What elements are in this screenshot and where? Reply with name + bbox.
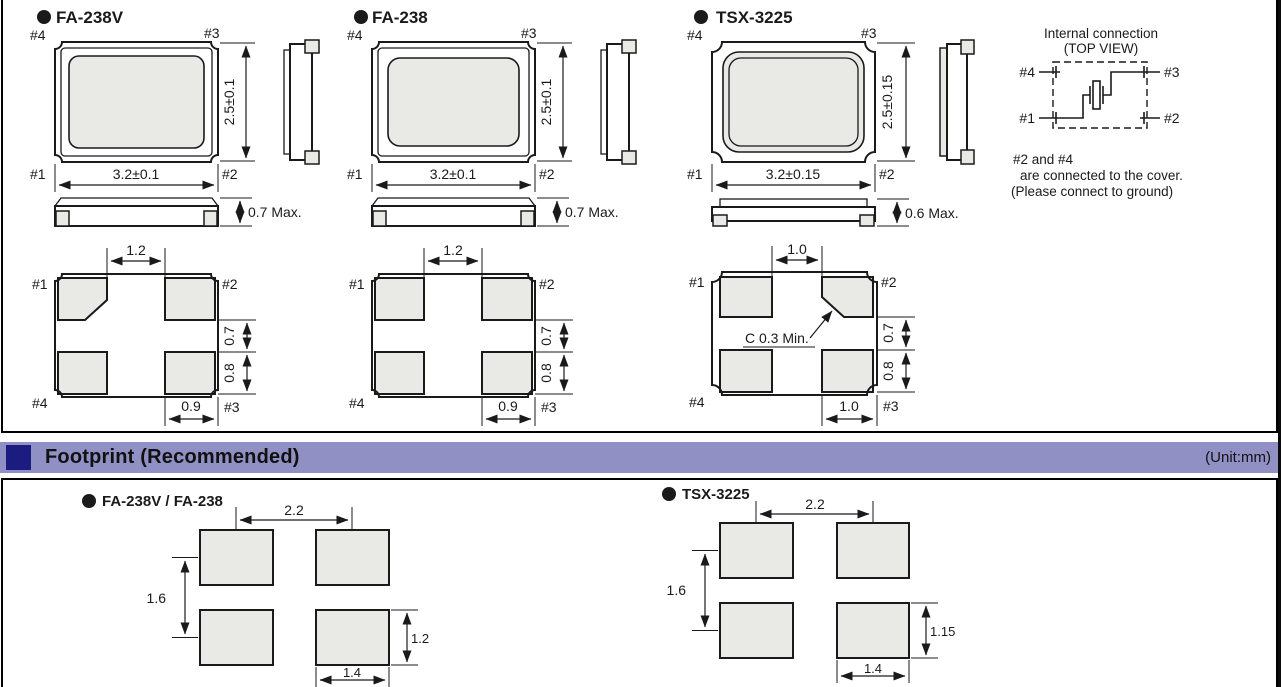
height-dimension: 2.5±0.1 bbox=[537, 43, 572, 161]
bottom-view: #1 #2 #4 #3 C 0.3 Min. 1.0 0.7 0.8 bbox=[689, 241, 915, 426]
internal-subtitle: (TOP VIEW) bbox=[1064, 41, 1139, 56]
dim-text: 1.6 bbox=[667, 582, 687, 598]
pin-label: #1 bbox=[689, 274, 705, 290]
pin-label: #2 bbox=[539, 276, 555, 292]
top-view: #4 #3 #1 #2 3.2±0.1 2.5±0.1 bbox=[347, 25, 572, 192]
dim-text: 2.5±0.1 bbox=[538, 78, 554, 125]
pad-height-dimension: 1.15 bbox=[911, 603, 955, 658]
pin-label: #1 bbox=[1019, 110, 1035, 126]
dim-text: 3.2±0.1 bbox=[113, 166, 160, 182]
bottom-view: #1 #2 #4 #3 1.2 0.7 0.8 0.9 bbox=[349, 242, 573, 426]
pin-label: #4 bbox=[689, 394, 705, 410]
side-view bbox=[940, 40, 974, 164]
height-dimension: 2.5±0.1 bbox=[220, 43, 255, 161]
pin-label: #1 bbox=[32, 276, 48, 292]
pin-label: #2 bbox=[879, 166, 895, 182]
pad-gap-dimension: 0.7 0.8 bbox=[877, 317, 915, 392]
pin-label: #3 bbox=[1164, 64, 1180, 80]
package-title: FA-238 bbox=[372, 8, 428, 27]
pad-width-dimension: 1.4 bbox=[837, 660, 909, 683]
side-view bbox=[284, 40, 319, 164]
pin-label: #3 bbox=[541, 399, 557, 415]
top-view: #4 #3 #1 #2 3.2±0.15 2.5±0.15 bbox=[687, 25, 915, 192]
pitch-y-dimension: 1.6 bbox=[667, 551, 718, 631]
pin-label: #4 bbox=[687, 27, 703, 43]
bullet-icon bbox=[662, 487, 676, 501]
dim-text: 0.6 Max. bbox=[905, 205, 959, 221]
footprint-drawing-tsx3225: TSX-3225 2.2 1.6 1.15 1.4 bbox=[620, 487, 1080, 687]
cover-note-line2: are connected to the cover. bbox=[1020, 168, 1183, 183]
pin-label: #2 bbox=[222, 276, 238, 292]
dim-text: 0.7 bbox=[538, 326, 554, 346]
elevation-view: 0.7 Max. bbox=[372, 198, 619, 226]
bullet-icon bbox=[694, 10, 708, 24]
dim-text: 0.7 bbox=[880, 323, 896, 343]
dim-text: 3.2±0.1 bbox=[430, 166, 477, 182]
pin-label: #4 bbox=[349, 395, 365, 411]
internal-title: Internal connection bbox=[1044, 26, 1158, 41]
pad-chamfered bbox=[822, 277, 873, 317]
pin-label: #2 bbox=[1164, 110, 1180, 126]
pin-label: #2 bbox=[881, 274, 897, 290]
pin-label: #1 bbox=[687, 166, 703, 182]
dim-text: 0.8 bbox=[538, 363, 554, 383]
dim-text: 1.15 bbox=[930, 624, 955, 639]
pad-width-dimension: 1.0 bbox=[822, 395, 877, 426]
dim-text: 2.2 bbox=[284, 502, 304, 518]
internal-connection-diagram: Internal connection (TOP VIEW) #4 #3 #1 … bbox=[1003, 0, 1279, 210]
pad-pitch-dimension: 1.2 bbox=[424, 242, 482, 278]
dim-text: 2.5±0.15 bbox=[879, 75, 895, 130]
cover-note-line3: (Please connect to ground) bbox=[1011, 184, 1173, 199]
pin-label: #1 bbox=[349, 276, 365, 292]
dim-text: 1.4 bbox=[343, 665, 361, 680]
pad-chamfered bbox=[58, 278, 107, 320]
pad-gap-dimension: 0.7 0.8 bbox=[218, 320, 256, 394]
dim-text: 0.8 bbox=[880, 361, 896, 381]
footprint-section-header: Footprint (Recommended) (Unit:mm) bbox=[0, 442, 1281, 473]
pad-gap-dimension: 0.7 0.8 bbox=[535, 320, 573, 394]
chamfer-note: C 0.3 Min. bbox=[745, 330, 809, 346]
footprint-title: TSX-3225 bbox=[682, 487, 750, 503]
dim-text: 1.2 bbox=[443, 242, 463, 258]
unit-label: (Unit:mm) bbox=[1205, 449, 1271, 466]
pin-label: #4 bbox=[30, 27, 46, 43]
pad-pitch-dimension: 1.2 bbox=[107, 242, 165, 278]
width-dimension: 3.2±0.15 bbox=[712, 164, 875, 192]
package-title: TSX-3225 bbox=[716, 8, 793, 27]
package-drawing-fa238v: FA-238V #4 #3 #1 #2 3.2±0.1 2.5±0.1 bbox=[28, 2, 348, 432]
dim-text: 2.2 bbox=[805, 496, 825, 512]
crystal-symbol bbox=[1090, 81, 1103, 109]
pin-label: #3 bbox=[883, 398, 899, 414]
pin-label: #3 bbox=[204, 25, 220, 41]
dim-text: 1.4 bbox=[864, 661, 882, 676]
elevation-view: 0.6 Max. bbox=[712, 199, 959, 226]
pad-width-dimension: 1.4 bbox=[316, 665, 389, 687]
datasheet-page: FA-238V #4 #3 #1 #2 3.2±0.1 2.5±0.1 bbox=[0, 0, 1281, 687]
bullet-icon bbox=[37, 10, 51, 24]
dim-text: 3.2±0.15 bbox=[766, 166, 821, 182]
pin-label: #1 bbox=[30, 166, 46, 182]
pad-width-dimension: 0.9 bbox=[165, 397, 218, 426]
pin-label: #3 bbox=[224, 399, 240, 415]
package-drawing-tsx3225: TSX-3225 #4 #3 #1 #2 3.2±0.15 2.5±0.15 bbox=[685, 2, 1005, 432]
top-view: #4 #3 #1 #2 3.2±0.1 2.5±0.1 bbox=[30, 25, 255, 192]
footprint-title: FA-238V / FA-238 bbox=[102, 493, 223, 510]
pin-label: #2 bbox=[539, 166, 555, 182]
width-dimension: 3.2±0.1 bbox=[372, 164, 535, 192]
bullet-icon bbox=[82, 494, 96, 508]
height-dimension: 2.5±0.15 bbox=[877, 43, 915, 161]
cover-note-line1: #2 and #4 bbox=[1013, 152, 1074, 167]
pitch-y-dimension: 1.6 bbox=[147, 558, 198, 638]
dim-text: 1.2 bbox=[411, 631, 429, 646]
dim-text: 1.0 bbox=[839, 398, 859, 414]
dim-text: 1.0 bbox=[787, 241, 807, 257]
pin-label: #3 bbox=[521, 25, 537, 41]
pin-label: #2 bbox=[222, 166, 238, 182]
dim-text: 1.2 bbox=[126, 242, 146, 258]
footprint-drawing-fa238: FA-238V / FA-238 2.2 1.6 1.2 1.4 bbox=[60, 487, 480, 687]
pin-label: #4 bbox=[347, 27, 363, 43]
dim-text: 0.9 bbox=[498, 398, 518, 414]
section-title: Footprint (Recommended) bbox=[45, 446, 300, 469]
dim-text: 0.7 bbox=[221, 326, 237, 346]
bottom-view: #1 #2 #4 #3 1.2 0.7 0.8 0.9 bbox=[32, 242, 256, 426]
section-marker-square bbox=[6, 445, 31, 470]
pitch-x-dimension: 2.2 bbox=[756, 496, 873, 523]
package-drawing-fa238: FA-238 #4 #3 #1 #2 3.2±0.1 2.5±0.1 bbox=[345, 2, 665, 432]
elevation-view: 0.7 Max. bbox=[55, 198, 302, 226]
side-view bbox=[601, 40, 636, 164]
pin-label: #1 bbox=[347, 166, 363, 182]
pin-label: #3 bbox=[861, 25, 877, 41]
pad-width-dimension: 0.9 bbox=[482, 397, 535, 426]
circuit bbox=[1039, 66, 1160, 124]
dim-text: 0.7 Max. bbox=[248, 204, 302, 220]
width-dimension: 3.2±0.1 bbox=[55, 164, 218, 192]
package-title: FA-238V bbox=[56, 8, 124, 27]
bullet-icon bbox=[354, 10, 368, 24]
dim-text: 2.5±0.1 bbox=[221, 78, 237, 125]
dim-text: 0.8 bbox=[221, 363, 237, 383]
pitch-x-dimension: 2.2 bbox=[236, 502, 352, 530]
pad-height-dimension: 1.2 bbox=[391, 610, 429, 665]
dim-text: 1.6 bbox=[147, 590, 167, 606]
dim-text: 0.7 Max. bbox=[565, 204, 619, 220]
dim-text: 0.9 bbox=[181, 398, 201, 414]
pin-label: #4 bbox=[32, 395, 48, 411]
pin-label: #4 bbox=[1019, 64, 1035, 80]
